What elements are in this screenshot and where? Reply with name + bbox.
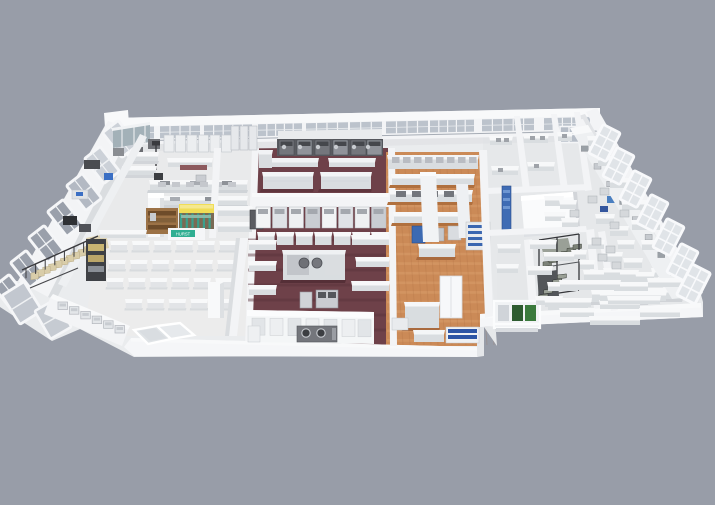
svg-text:HURST: HURST: [176, 232, 191, 237]
